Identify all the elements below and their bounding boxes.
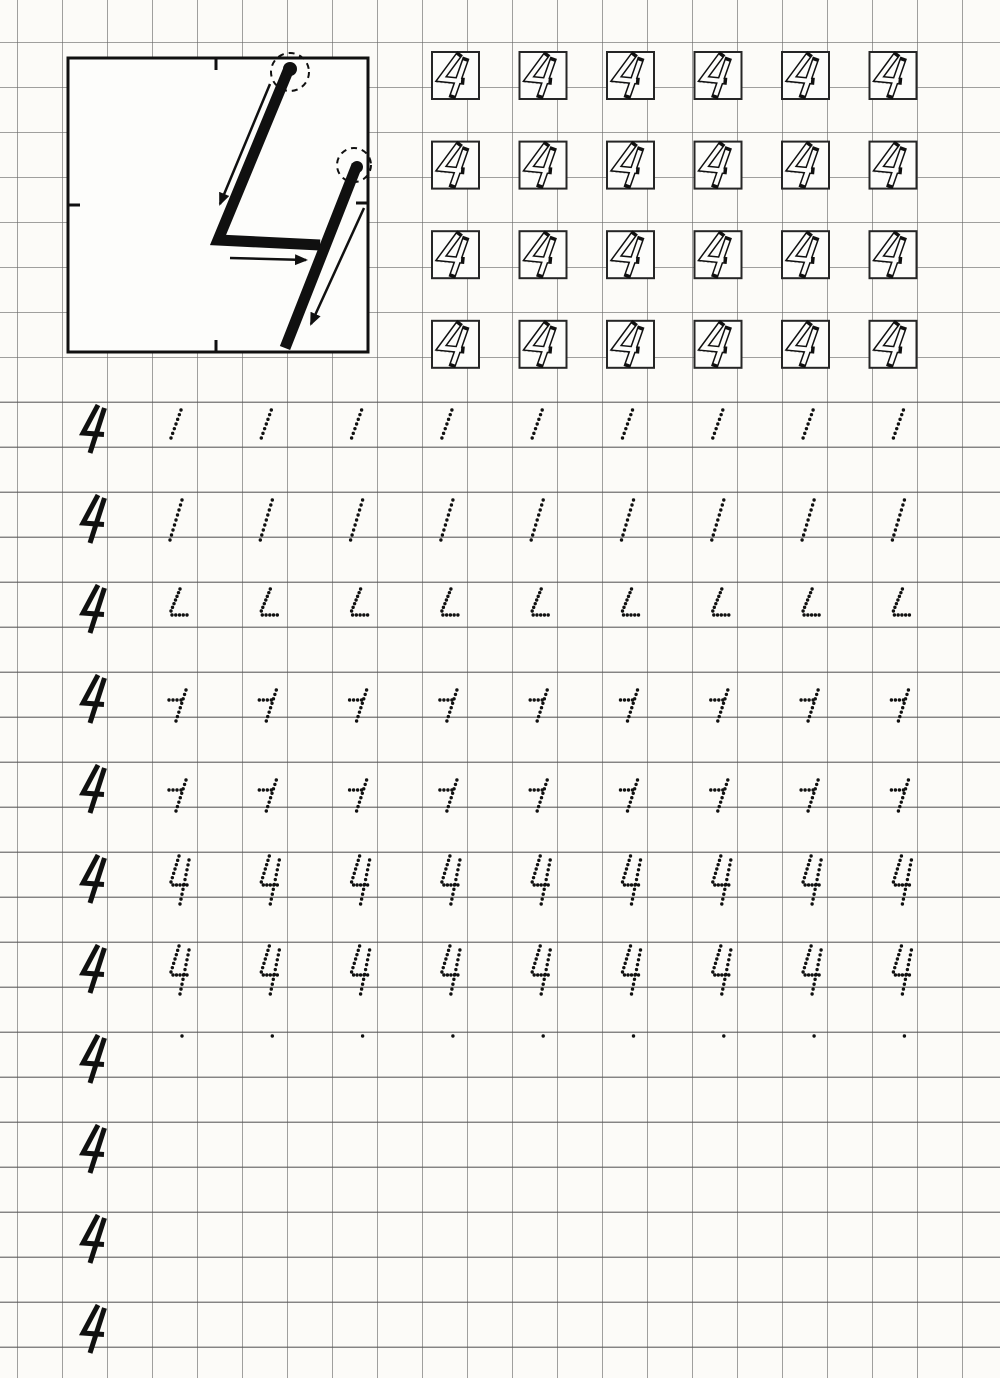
model-digit-4 [83, 1215, 105, 1263]
trace-square [782, 52, 829, 99]
start-point-dot [271, 1034, 274, 1037]
model-digit-4 [83, 1125, 105, 1173]
start-point-dot [812, 1034, 815, 1037]
trace-square [520, 52, 567, 99]
dotted-trace-glyph [530, 498, 545, 541]
dotted-trace-glyph [169, 587, 188, 616]
trace-square [695, 52, 742, 99]
model-digit-4 [83, 495, 105, 543]
trace-square [607, 231, 654, 278]
trace-square [432, 142, 479, 189]
dotted-trace-glyph [531, 408, 544, 439]
dotted-trace-glyph [259, 498, 274, 541]
trace-square [607, 321, 654, 368]
practice-row [83, 944, 913, 995]
worksheet-canvas [0, 0, 1000, 1378]
dotted-trace-glyph [168, 498, 183, 541]
stroke-start-dot [283, 62, 297, 76]
dotted-trace-glyph [710, 498, 725, 541]
dotted-trace-glyph [531, 944, 552, 995]
start-point-dot [180, 1034, 183, 1037]
start-point-dot [451, 1034, 454, 1037]
dotted-trace-glyph [892, 408, 905, 439]
dotted-trace-glyph [621, 944, 642, 995]
trace-square [607, 52, 654, 99]
start-point-dot [632, 1034, 635, 1037]
dotted-trace-glyph [440, 587, 459, 616]
dotted-trace-glyph [260, 944, 281, 995]
trace-square [607, 142, 654, 189]
trace-square [870, 142, 917, 189]
dotted-trace-glyph [801, 408, 814, 439]
trace-square [695, 142, 742, 189]
practice-row [83, 495, 906, 543]
dotted-trace-glyph [891, 498, 906, 541]
dotted-trace-glyph [801, 587, 820, 616]
dotted-trace-glyph [892, 587, 911, 616]
practice-row [83, 675, 910, 723]
dotted-trace-glyph [711, 408, 724, 439]
dotted-trace-glyph [260, 854, 281, 905]
model-digit-4 [83, 405, 105, 453]
dotted-trace-glyph [169, 408, 182, 439]
start-point-dot [361, 1034, 364, 1037]
practice-row [83, 1305, 105, 1353]
practice-row [83, 765, 910, 813]
dotted-trace-glyph [440, 408, 453, 439]
model-digit-4 [83, 675, 105, 723]
dotted-trace-glyph [620, 498, 635, 541]
trace-square [782, 231, 829, 278]
dotted-trace-glyph [260, 587, 279, 616]
dotted-trace-glyph [892, 944, 913, 995]
dotted-trace-glyph [892, 854, 913, 905]
dotted-trace-glyph [169, 854, 190, 905]
practice-row [83, 585, 911, 633]
dotted-trace-glyph [350, 944, 371, 995]
practice-row [83, 854, 913, 905]
trace-square [432, 52, 479, 99]
trace-square [870, 52, 917, 99]
dotted-trace-glyph [350, 854, 371, 905]
dotted-trace-glyph [169, 944, 190, 995]
model-digit-4 [83, 585, 105, 633]
model-digit-4 [83, 1035, 105, 1083]
trace-square [520, 231, 567, 278]
practice-row [83, 405, 905, 453]
dotted-trace-glyph [801, 854, 822, 905]
dotted-trace-glyph [711, 944, 732, 995]
dotted-trace-glyph [531, 854, 552, 905]
dotted-trace-glyph [621, 587, 640, 616]
dotted-trace-glyph [350, 587, 369, 616]
dotted-trace-glyph [440, 854, 461, 905]
dotted-trace-glyph [350, 408, 363, 439]
dotted-trace-glyph [621, 854, 642, 905]
start-point-dot [903, 1034, 906, 1037]
dotted-trace-glyph [439, 498, 454, 541]
practice-row [83, 1125, 105, 1173]
trace-square [520, 142, 567, 189]
model-digit-4 [83, 855, 105, 903]
trace-square [695, 231, 742, 278]
model-digit-4 [83, 765, 105, 813]
stroke-start-dot [351, 161, 363, 173]
trace-square [695, 321, 742, 368]
trace-square [782, 321, 829, 368]
trace-square [782, 142, 829, 189]
practice-row [83, 1034, 906, 1083]
dotted-trace-glyph [711, 587, 730, 616]
trace-square [870, 231, 917, 278]
model-digit-4 [83, 945, 105, 993]
trace-square [432, 231, 479, 278]
dotted-trace-glyph [711, 854, 732, 905]
dotted-trace-glyph [260, 408, 273, 439]
practice-row [83, 1215, 105, 1263]
dotted-trace-glyph [621, 408, 634, 439]
trace-square [432, 321, 479, 368]
dotted-trace-glyph [349, 498, 364, 541]
start-point-dot [542, 1034, 545, 1037]
start-point-dot [722, 1034, 725, 1037]
worksheet-page [0, 0, 1000, 1378]
instruction-box-frame [68, 58, 368, 352]
trace-square [520, 321, 567, 368]
model-digit-4 [83, 1305, 105, 1353]
dotted-trace-glyph [801, 944, 822, 995]
trace-square [870, 321, 917, 368]
dotted-trace-glyph [531, 587, 550, 616]
instruction-box [68, 53, 371, 352]
dotted-trace-glyph [800, 498, 815, 541]
dotted-trace-glyph [440, 944, 461, 995]
